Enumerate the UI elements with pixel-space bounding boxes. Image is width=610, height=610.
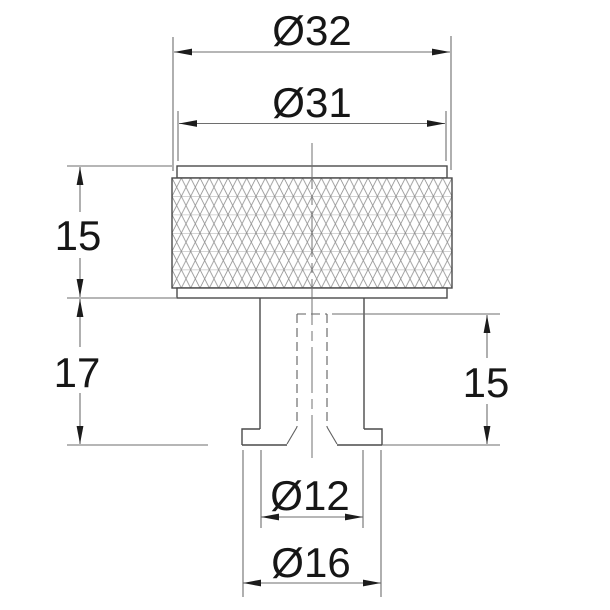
arrowhead-left — [243, 580, 261, 587]
dim-stem-diameter: Ø12 — [261, 450, 363, 528]
dim-head-height: 15 — [55, 166, 176, 298]
dim-label-body-diameter: Ø31 — [272, 79, 351, 126]
dim-label-base-diameter: Ø16 — [271, 539, 350, 586]
dim-label-head-height: 15 — [55, 212, 102, 259]
technical-drawing-page: Ø32 Ø31 15 17 15 — [0, 0, 610, 610]
dim-stem-length: 17 — [54, 299, 208, 445]
dim-hole-depth: 15 — [332, 314, 509, 445]
arrowhead-up — [77, 167, 84, 185]
arrowhead-right — [432, 49, 450, 56]
arrowhead-down — [77, 279, 84, 297]
hole-countersink-right — [327, 427, 337, 444]
arrowhead-down — [77, 426, 84, 444]
dim-label-stem-diameter: Ø12 — [270, 472, 349, 519]
arrowhead-right — [427, 120, 445, 127]
arrowhead-up — [77, 299, 84, 317]
arrowhead-up — [484, 315, 491, 333]
dim-label-stem-length: 17 — [54, 349, 101, 396]
dim-label-hole-depth: 15 — [463, 359, 510, 406]
arrowhead-right — [363, 580, 381, 587]
arrowhead-left — [174, 49, 192, 56]
arrowhead-left — [179, 120, 197, 127]
hole-countersink-left — [287, 427, 297, 444]
flange-left-step — [242, 429, 260, 445]
dim-label-outer-diameter: Ø32 — [272, 7, 351, 54]
technical-drawing-canvas: Ø32 Ø31 15 17 15 — [0, 0, 610, 610]
arrowhead-down — [484, 426, 491, 444]
flange-right-step — [364, 429, 382, 445]
